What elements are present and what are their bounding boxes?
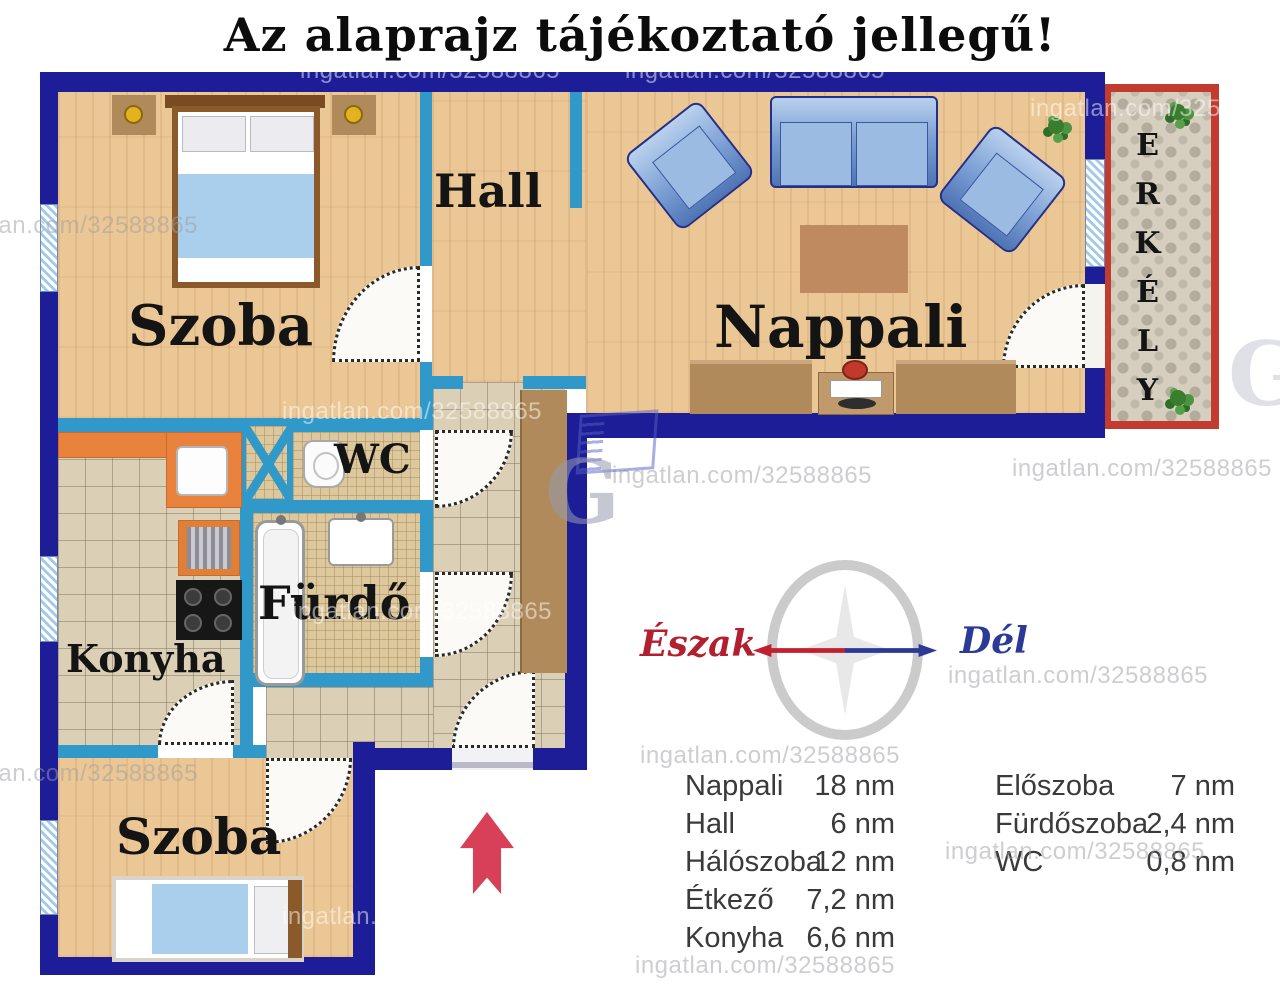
balcony-window — [1085, 159, 1105, 267]
burner-4 — [214, 614, 232, 632]
legend-row-furdoszoba: Fürdőszoba2,4 nm — [995, 808, 1235, 842]
dish-rack — [187, 527, 231, 569]
legend-name: Hálószoba — [685, 846, 822, 879]
bathroom-sink — [328, 518, 394, 566]
burner-2 — [214, 588, 232, 606]
wall-hall-livingroom — [570, 90, 582, 208]
watermark-text: ingatlan.com/32588865 — [0, 212, 198, 240]
sofa-seat-left — [780, 122, 852, 186]
single-bed-blanket — [152, 884, 248, 954]
compass-north-label: Észak — [640, 623, 756, 665]
legend-name: Konyha — [685, 922, 783, 955]
wall-entrance-left — [375, 748, 452, 770]
legend-area: 6,6 nm — [806, 922, 895, 955]
kitchen-label: Konyha — [66, 640, 226, 678]
watermark-text: ingatlan.com/32588865 — [282, 903, 542, 931]
watermark-text: ingatlan.com/32588865 — [640, 742, 900, 770]
bedroom2-label: Szoba — [116, 812, 281, 862]
wall-bedroom2-right — [353, 742, 375, 975]
bedroom1-label: Szoba — [128, 298, 313, 354]
coffee-table — [800, 225, 908, 293]
legend-row-konyha: Konyha6,6 nm — [685, 922, 895, 956]
armchair-left-seat — [652, 125, 736, 209]
monitor — [838, 398, 876, 409]
legend-name: Hall — [685, 808, 735, 841]
legend-area: 6 nm — [831, 808, 895, 841]
sofa-seat-right — [856, 122, 928, 186]
double-bed — [172, 106, 320, 288]
wall-wc-hallway-b — [420, 508, 433, 572]
legend-row-etkezo: Étkező7,2 nm — [685, 884, 895, 918]
kitchen-cabinet — [178, 520, 240, 576]
stove — [176, 580, 242, 640]
nightstand-left — [112, 95, 156, 135]
legend-area: 7,2 nm — [806, 884, 895, 917]
entrance-arrow-icon — [460, 812, 514, 894]
wall-outer-top — [40, 72, 1105, 92]
bedroom2-window — [40, 820, 58, 915]
legend-row-nappali: Nappali18 nm — [685, 770, 895, 804]
ingatlan-logo-g-icon: G — [1228, 330, 1280, 418]
balcony-label: ERKÉLY — [1132, 128, 1162, 418]
legend-row-eloszoba: Előszoba7 nm — [995, 770, 1235, 804]
ingatlan-logo-g-icon: G — [545, 448, 620, 536]
page-title: Az alaprajz tájékoztató jellegű! — [0, 8, 1280, 62]
watermark-text: ingatlan.com/32588865 — [625, 57, 885, 85]
legend-row-haloszoba: Hálószoba12 nm — [685, 846, 895, 880]
legend-name: Fürdőszoba — [995, 808, 1148, 841]
pillow-left — [182, 116, 246, 152]
watermark-text: ingatlan.com/32588865 — [948, 662, 1208, 690]
sideboard-right — [896, 360, 1016, 414]
legend-area: 18 nm — [814, 770, 895, 803]
armchair-right-seat — [960, 152, 1044, 236]
legend-area: 12 nm — [814, 846, 895, 879]
legend-name: Előszoba — [995, 770, 1114, 803]
watermark-text: ingatlan.com/32588865 — [282, 398, 542, 426]
wall-livingroom-bottom — [586, 413, 1105, 438]
burner-3 — [184, 614, 202, 632]
single-bed — [112, 876, 304, 962]
watermark-text: ingatlan.com/32588865 — [292, 598, 552, 626]
wall-bedroom1-hall-upper — [420, 90, 432, 266]
hall-label: Hall — [434, 168, 542, 214]
kitchen-window — [40, 556, 58, 642]
watermark-text: ingatlan.com/32588865 — [635, 952, 895, 980]
watermark-text: ingatlan.com/32588865 — [945, 838, 1205, 866]
plant-balcony-bottom — [1170, 390, 1186, 406]
wall-hall-bottom-right — [523, 376, 586, 389]
watermark-text: ingatlan.com/32588865 — [0, 760, 198, 788]
wc-label: WC — [334, 440, 411, 480]
hall-floor — [432, 90, 586, 382]
wall-kitchen-bedroom2-a — [58, 745, 158, 758]
kitchen-sink — [176, 446, 228, 496]
legend-area: 7 nm — [1171, 770, 1235, 803]
legend-name: Étkező — [685, 884, 774, 917]
legend-row-hall: Hall6 nm — [685, 808, 895, 842]
desk-chair — [842, 360, 868, 380]
nightstand-right — [332, 95, 376, 135]
pillow-right — [250, 116, 314, 152]
compass-south-label: Dél — [960, 620, 1028, 662]
sideboard-left — [690, 360, 812, 414]
entrance-threshold — [452, 762, 533, 768]
bed-blanket — [178, 174, 314, 258]
legend-area: 2,4 nm — [1146, 808, 1235, 841]
wall-livingroom-balcony-b — [1085, 267, 1105, 284]
floorplan-page: Az alaprajz tájékoztató jellegű! — [0, 0, 1280, 992]
balcony-door-opening — [1085, 284, 1105, 368]
watermark-text: ingatlan.com/32588865 — [300, 57, 560, 85]
wall-hall-bottom-left — [420, 376, 463, 389]
lamp-right — [344, 105, 363, 124]
sink-faucet — [356, 512, 366, 522]
watermark-text: ingatlan.com/32588865 — [1030, 95, 1280, 123]
watermark-text: ingatlan.com/32588865 — [1012, 455, 1272, 483]
wall-entrance-right — [533, 748, 587, 770]
bathtub-faucet — [276, 515, 286, 525]
wall-kitchen-bedroom2-b — [233, 745, 266, 758]
keyboard — [830, 380, 882, 398]
burner-1 — [184, 588, 202, 606]
shaft-box — [240, 420, 293, 505]
legend-name: Nappali — [685, 770, 783, 803]
lamp-left — [124, 105, 143, 124]
sofa — [770, 96, 938, 188]
livingroom-label: Nappali — [714, 298, 967, 356]
